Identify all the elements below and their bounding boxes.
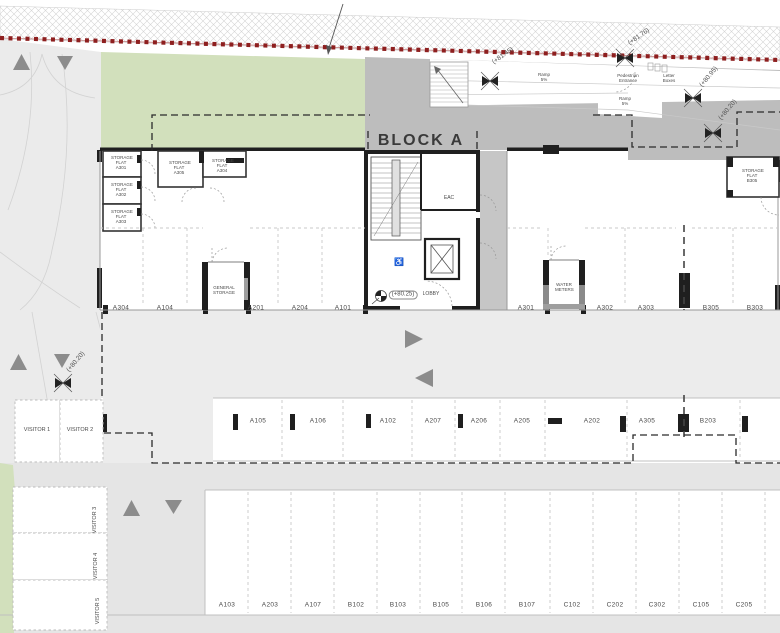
- gray-band-bottom: [0, 615, 780, 633]
- driveway-lower-left: [107, 490, 205, 615]
- parking-space-label: A302: [597, 304, 613, 311]
- parking-space-label: A204: [292, 304, 308, 311]
- room-label-general-storage: GENERAL STORAGE: [213, 285, 235, 295]
- core-side-corridor: [480, 151, 507, 310]
- visitor-space-label: VISITOR 2: [66, 427, 94, 433]
- parking-space-label: B305: [703, 304, 719, 311]
- parking-space-label: C202: [607, 601, 624, 608]
- visitor-space-label: VISITOR 5: [95, 597, 101, 625]
- letter-boxes-label: Letter Boxes: [661, 73, 677, 83]
- ramp-label: Ramp 5%: [618, 96, 632, 106]
- visitor-space-label: VISITOR 3: [92, 506, 98, 534]
- parking-space-label: B107: [519, 601, 535, 608]
- visitor-space-label: VISITOR 4: [93, 552, 99, 580]
- parking-space-label: B303: [747, 304, 763, 311]
- room-label-lobby: LOBBY: [423, 292, 440, 298]
- elevator: [425, 239, 459, 279]
- parking-space-label: A206: [471, 417, 487, 424]
- drive-aisle: [100, 310, 780, 398]
- parking-space-label: A303: [638, 304, 654, 311]
- left-exterior-area: [0, 39, 101, 463]
- core-stair: [371, 157, 421, 240]
- storage-flat-label: STORAGE FLAT B305: [742, 168, 762, 184]
- parking-space-label: B105: [433, 601, 449, 608]
- visitor-space-label: VISITOR 1: [23, 427, 51, 433]
- storage-flat-label: STORAGE FLAT A301: [111, 155, 131, 171]
- parking-space-label: B102: [348, 601, 364, 608]
- parking-space-label: A304: [113, 304, 129, 311]
- parking-space-label: A202: [584, 417, 600, 424]
- parking-space-label: C102: [564, 601, 581, 608]
- parking-space-label: A205: [514, 417, 530, 424]
- external-stair: [430, 62, 468, 107]
- parking-space-label: A106: [310, 417, 326, 424]
- parking-space-label: A103: [219, 601, 235, 608]
- ramp-label: Ramp 5%: [537, 72, 551, 82]
- landscape-green-top: [101, 52, 365, 150]
- storage-flat-label: STORAGE FLAT A304: [212, 158, 232, 174]
- parking-space-label: A305: [639, 417, 655, 424]
- block-title: BLOCK A: [378, 132, 464, 150]
- room-label-eac: EAC: [444, 196, 454, 202]
- parking-space-label: C205: [736, 601, 753, 608]
- storage-flat-label: STORAGE FLAT A303: [111, 209, 131, 225]
- parking-space-label: A104: [157, 304, 173, 311]
- parking-space-label: C105: [693, 601, 710, 608]
- storage-flat-label: STORAGE FLAT A305: [169, 160, 189, 176]
- wheelchair-icon: ♿: [394, 257, 404, 266]
- plan-linework: [0, 0, 780, 633]
- storage-flat-label: STORAGE FLAT A302: [111, 182, 131, 198]
- parking-space-label: B103: [390, 601, 406, 608]
- room-label-water-meters: WATER METERS: [555, 282, 573, 292]
- parking-space-label: A301: [518, 304, 534, 311]
- ramp-corridor-lower: [103, 398, 213, 463]
- parking-space-label: A201: [248, 304, 264, 311]
- parking-space-label: A101: [335, 304, 351, 311]
- parking-space-label: A107: [305, 601, 321, 608]
- parking-space-label: A105: [250, 417, 266, 424]
- parking-space-label: A207: [425, 417, 441, 424]
- pedestrian-entrance-label: Pedestrian Entrance: [615, 73, 641, 83]
- lobby-level-label: (+80.25): [389, 291, 418, 300]
- parking-space-label: C302: [649, 601, 666, 608]
- floor-plan-canvas: BLOCK A STORAGE FLAT A301 STORAGE FLAT A…: [0, 0, 780, 633]
- gray-band-mid: [0, 463, 780, 490]
- parking-space-label: B106: [476, 601, 492, 608]
- parking-space-label: A203: [262, 601, 278, 608]
- parking-space-label: A102: [380, 417, 396, 424]
- parking-space-label: B203: [700, 417, 716, 424]
